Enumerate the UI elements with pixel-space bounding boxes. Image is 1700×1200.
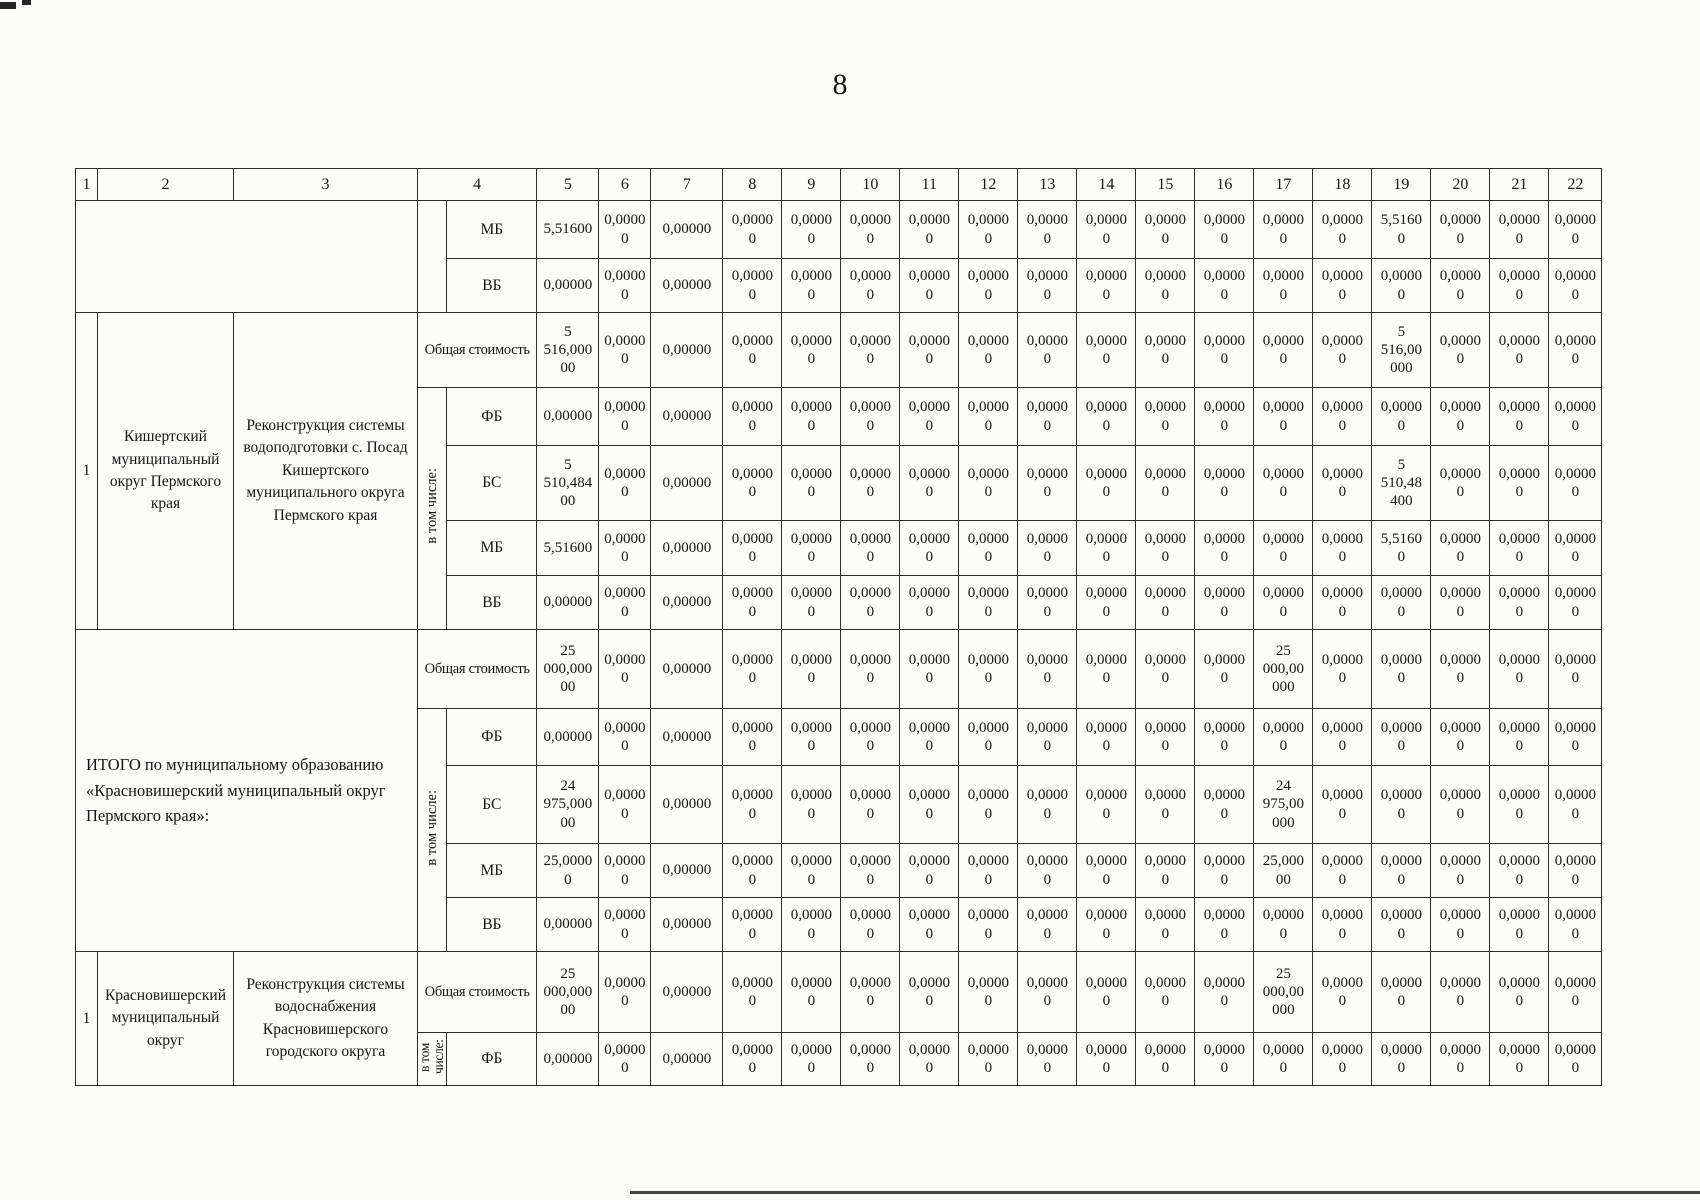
value-cell: 0,0000 0 (1018, 201, 1077, 259)
column-header: 9 (782, 169, 841, 201)
value-cell: 0,0000 0 (841, 844, 900, 898)
value-cell: 0,0000 0 (1195, 709, 1254, 766)
value-cell: 0,0000 0 (1254, 313, 1313, 388)
value-cell: 0,0000 0 (1018, 709, 1077, 766)
value-cell: 0,0000 0 (723, 952, 782, 1033)
including-label-cell: в том числе: (418, 1033, 447, 1086)
value-cell: 0,0000 0 (1549, 521, 1602, 576)
value-cell: 0,0000 0 (841, 1033, 900, 1086)
column-header: 5 (537, 169, 599, 201)
value-cell: 0,0000 0 (1018, 388, 1077, 446)
value-cell: 0,0000 0 (1431, 844, 1490, 898)
table-body: МБ5,516000,0000 00,000000,0000 00,0000 0… (76, 201, 1602, 1086)
source-label: БС (447, 766, 537, 844)
value-cell: 0,0000 0 (900, 630, 959, 709)
value-cell: 0,0000 0 (782, 201, 841, 259)
column-header: 18 (1313, 169, 1372, 201)
value-cell: 0,00000 (537, 259, 599, 313)
including-label-cell: в том числе: (418, 709, 447, 952)
value-cell: 0,00000 (651, 313, 723, 388)
column-header: 20 (1431, 169, 1490, 201)
value-cell: 0,0000 0 (1313, 259, 1372, 313)
value-cell: 0,0000 0 (1549, 201, 1602, 259)
value-cell: 0,0000 0 (1018, 521, 1077, 576)
column-header: 7 (651, 169, 723, 201)
value-cell: 0,0000 0 (1195, 766, 1254, 844)
column-header: 14 (1077, 169, 1136, 201)
value-cell: 0,0000 0 (1431, 313, 1490, 388)
value-cell: 5 516,00 000 (1372, 313, 1431, 388)
value-cell: 0,0000 0 (1018, 844, 1077, 898)
value-cell: 0,0000 0 (599, 446, 651, 521)
value-cell: 5 516,000 00 (537, 313, 599, 388)
column-header: 17 (1254, 169, 1313, 201)
source-label: ВБ (447, 259, 537, 313)
value-cell: 0,0000 0 (1077, 388, 1136, 446)
value-cell: 0,0000 0 (723, 259, 782, 313)
value-cell: 0,0000 0 (1136, 844, 1195, 898)
value-cell: 0,0000 0 (959, 952, 1018, 1033)
value-cell: 0,0000 0 (959, 521, 1018, 576)
value-cell: 0,0000 0 (599, 898, 651, 952)
table-row: 1Красновишерский муниципальный округРеко… (76, 952, 1602, 1033)
value-cell: 0,0000 0 (782, 259, 841, 313)
row-number-cell: 1 (76, 952, 98, 1086)
value-cell: 0,0000 0 (782, 388, 841, 446)
value-cell: 0,0000 0 (1431, 259, 1490, 313)
value-cell: 0,0000 0 (782, 313, 841, 388)
table-row: ИТОГО по муниципальному образованию «Кра… (76, 630, 1602, 709)
value-cell: 0,0000 0 (1018, 1033, 1077, 1086)
value-cell: 0,0000 0 (1372, 952, 1431, 1033)
value-cell: 0,0000 0 (1431, 766, 1490, 844)
value-cell: 0,0000 0 (1372, 898, 1431, 952)
value-cell: 0,0000 0 (1490, 709, 1549, 766)
value-cell: 0,0000 0 (1313, 766, 1372, 844)
value-cell: 0,0000 0 (1490, 576, 1549, 630)
value-cell: 5,51600 (537, 201, 599, 259)
value-cell: 0,0000 0 (723, 709, 782, 766)
value-cell: 0,0000 0 (1431, 446, 1490, 521)
value-cell: 24 975,000 00 (537, 766, 599, 844)
value-cell: 0,0000 0 (599, 766, 651, 844)
value-cell: 24 975,00 000 (1254, 766, 1313, 844)
value-cell: 0,0000 0 (841, 766, 900, 844)
scan-artifact-top-left-1 (0, 2, 16, 9)
value-cell: 25,000 00 (1254, 844, 1313, 898)
value-cell: 0,0000 0 (959, 388, 1018, 446)
source-label: ВБ (447, 898, 537, 952)
value-cell: 0,0000 0 (723, 1033, 782, 1086)
value-cell: 0,0000 0 (1490, 766, 1549, 844)
value-cell: 0,0000 0 (1195, 576, 1254, 630)
value-cell: 0,0000 0 (1372, 766, 1431, 844)
value-cell: 0,0000 0 (1490, 1033, 1549, 1086)
column-header: 13 (1018, 169, 1077, 201)
value-cell: 25 000,00 000 (1254, 952, 1313, 1033)
value-cell: 0,0000 0 (1077, 844, 1136, 898)
value-cell: 0,0000 0 (1195, 201, 1254, 259)
value-cell: 0,0000 0 (723, 446, 782, 521)
value-cell: 0,0000 0 (841, 630, 900, 709)
value-cell: 0,0000 0 (1077, 576, 1136, 630)
value-cell: 0,0000 0 (1077, 898, 1136, 952)
value-cell: 0,0000 0 (1490, 844, 1549, 898)
column-header: 8 (723, 169, 782, 201)
value-cell: 0,0000 0 (1136, 766, 1195, 844)
value-cell: 0,0000 0 (1431, 898, 1490, 952)
value-cell: 0,0000 0 (1372, 1033, 1431, 1086)
value-cell: 0,0000 0 (1136, 521, 1195, 576)
value-cell: 0,0000 0 (599, 259, 651, 313)
value-cell: 0,0000 0 (723, 521, 782, 576)
value-cell: 25 000,000 00 (537, 630, 599, 709)
value-cell: 0,0000 0 (782, 576, 841, 630)
value-cell: 0,0000 0 (1254, 259, 1313, 313)
project-cell: Реконструкция системы водоснабжения Крас… (234, 952, 418, 1086)
value-cell: 0,0000 0 (841, 259, 900, 313)
value-cell: 0,0000 0 (599, 952, 651, 1033)
value-cell: 0,0000 0 (959, 766, 1018, 844)
table-row: МБ5,516000,0000 00,000000,0000 00,0000 0… (76, 201, 1602, 259)
value-cell: 0,0000 0 (1431, 201, 1490, 259)
value-cell: 0,0000 0 (1195, 313, 1254, 388)
value-cell: 0,0000 0 (1136, 898, 1195, 952)
value-cell: 0,00000 (651, 766, 723, 844)
column-header: 4 (418, 169, 537, 201)
value-cell: 0,0000 0 (723, 844, 782, 898)
value-cell: 0,0000 0 (599, 521, 651, 576)
value-cell: 0,0000 0 (1254, 201, 1313, 259)
column-header: 19 (1372, 169, 1431, 201)
including-label-cell: в том числе: (418, 388, 447, 630)
value-cell: 0,0000 0 (782, 709, 841, 766)
value-cell: 0,0000 0 (959, 259, 1018, 313)
value-cell: 0,0000 0 (900, 259, 959, 313)
value-cell: 0,00000 (651, 521, 723, 576)
value-cell: 0,0000 0 (841, 709, 900, 766)
value-cell: 0,0000 0 (782, 952, 841, 1033)
column-header: 16 (1195, 169, 1254, 201)
value-cell: 0,0000 0 (723, 313, 782, 388)
value-cell: 0,0000 0 (1077, 313, 1136, 388)
page-number: 8 (760, 68, 920, 102)
value-cell: 0,0000 0 (1077, 1033, 1136, 1086)
value-cell: 0,0000 0 (723, 576, 782, 630)
value-cell: 0,0000 0 (900, 766, 959, 844)
value-cell: 0,0000 0 (1136, 259, 1195, 313)
total-cost-label: Общая стоимость (418, 313, 537, 388)
total-cost-label: Общая стоимость (418, 952, 537, 1033)
value-cell: 0,0000 0 (1490, 630, 1549, 709)
value-cell: 0,00000 (651, 446, 723, 521)
value-cell: 0,0000 0 (900, 446, 959, 521)
project-cell: Реконструкция системы водоподготовки с. … (234, 313, 418, 630)
document-page: { "page": { "number": "8" }, "table": { … (0, 0, 1700, 1200)
value-cell: 0,0000 0 (1254, 576, 1313, 630)
value-cell: 0,0000 0 (782, 446, 841, 521)
row-number-cell: 1 (76, 313, 98, 630)
value-cell: 0,0000 0 (900, 201, 959, 259)
value-cell: 0,0000 0 (1018, 446, 1077, 521)
value-cell: 0,0000 0 (1549, 952, 1602, 1033)
source-label: ВБ (447, 576, 537, 630)
value-cell: 0,0000 0 (900, 1033, 959, 1086)
value-cell: 0,0000 0 (1549, 844, 1602, 898)
value-cell: 0,0000 0 (1077, 446, 1136, 521)
value-cell: 0,0000 0 (599, 844, 651, 898)
value-cell: 0,0000 0 (841, 898, 900, 952)
value-cell: 0,0000 0 (841, 521, 900, 576)
value-cell: 0,0000 0 (1313, 844, 1372, 898)
value-cell: 5 510,484 00 (537, 446, 599, 521)
source-label: МБ (447, 521, 537, 576)
value-cell: 0,0000 0 (900, 952, 959, 1033)
value-cell: 0,0000 0 (782, 1033, 841, 1086)
value-cell: 0,00000 (651, 844, 723, 898)
value-cell: 5,5160 0 (1372, 201, 1431, 259)
value-cell: 0,0000 0 (1490, 259, 1549, 313)
value-cell: 0,0000 0 (1549, 1033, 1602, 1086)
value-cell: 0,0000 0 (900, 709, 959, 766)
value-cell: 0,0000 0 (1549, 630, 1602, 709)
table-row: 1Кишертский муниципальный округ Пермског… (76, 313, 1602, 388)
value-cell: 0,0000 0 (841, 201, 900, 259)
value-cell: 0,0000 0 (1136, 388, 1195, 446)
value-cell: 0,0000 0 (1313, 521, 1372, 576)
value-cell: 0,0000 0 (959, 898, 1018, 952)
value-cell: 0,0000 0 (1136, 952, 1195, 1033)
value-cell: 0,0000 0 (723, 630, 782, 709)
value-cell: 0,0000 0 (599, 709, 651, 766)
value-cell: 0,0000 0 (1077, 766, 1136, 844)
value-cell: 0,0000 0 (900, 898, 959, 952)
value-cell: 0,0000 0 (782, 844, 841, 898)
value-cell: 0,0000 0 (1195, 630, 1254, 709)
value-cell: 0,0000 0 (1018, 576, 1077, 630)
scan-artifact-bottom-line (630, 1191, 1700, 1194)
column-header: 15 (1136, 169, 1195, 201)
value-cell: 0,0000 0 (1313, 709, 1372, 766)
value-cell: 0,00000 (651, 898, 723, 952)
value-cell: 0,0000 0 (1549, 576, 1602, 630)
value-cell: 0,0000 0 (1372, 576, 1431, 630)
value-cell: 0,0000 0 (1195, 952, 1254, 1033)
table-head: 12345678910111213141516171819202122 (76, 169, 1602, 201)
carryover-including-cell (418, 201, 447, 313)
value-cell: 0,0000 0 (599, 576, 651, 630)
value-cell: 0,0000 0 (900, 388, 959, 446)
value-cell: 25 000,00 000 (1254, 630, 1313, 709)
value-cell: 0,0000 0 (723, 898, 782, 952)
value-cell: 0,0000 0 (1372, 844, 1431, 898)
value-cell: 0,0000 0 (1490, 313, 1549, 388)
value-cell: 0,0000 0 (1077, 630, 1136, 709)
value-cell: 0,00000 (537, 898, 599, 952)
value-cell: 0,0000 0 (959, 313, 1018, 388)
value-cell: 0,0000 0 (1372, 388, 1431, 446)
value-cell: 0,00000 (537, 709, 599, 766)
value-cell: 0,0000 0 (841, 576, 900, 630)
value-cell: 0,0000 0 (1136, 446, 1195, 521)
value-cell: 0,0000 0 (599, 388, 651, 446)
value-cell: 5,5160 0 (1372, 521, 1431, 576)
value-cell: 0,0000 0 (900, 521, 959, 576)
value-cell: 0,0000 0 (1431, 1033, 1490, 1086)
value-cell: 0,00000 (651, 259, 723, 313)
value-cell: 0,0000 0 (1018, 630, 1077, 709)
value-cell: 0,0000 0 (1136, 313, 1195, 388)
value-cell: 0,0000 0 (959, 844, 1018, 898)
value-cell: 0,0000 0 (900, 844, 959, 898)
value-cell: 0,0000 0 (841, 446, 900, 521)
including-vertical-label: в том числе: (425, 790, 440, 866)
source-label: ФБ (447, 709, 537, 766)
value-cell: 0,0000 0 (1549, 766, 1602, 844)
value-cell: 0,0000 0 (1313, 898, 1372, 952)
value-cell: 0,0000 0 (1431, 388, 1490, 446)
value-cell: 0,00000 (651, 576, 723, 630)
value-cell: 0,0000 0 (782, 766, 841, 844)
column-header: 6 (599, 169, 651, 201)
scan-artifact-top-left-2 (22, 0, 31, 5)
value-cell: 0,0000 0 (959, 201, 1018, 259)
column-header: 22 (1549, 169, 1602, 201)
value-cell: 0,0000 0 (1549, 388, 1602, 446)
value-cell: 0,0000 0 (782, 521, 841, 576)
value-cell: 0,0000 0 (1313, 446, 1372, 521)
source-label: БС (447, 446, 537, 521)
value-cell: 0,0000 0 (1431, 630, 1490, 709)
value-cell: 0,0000 0 (1136, 576, 1195, 630)
value-cell: 0,0000 0 (1490, 446, 1549, 521)
value-cell: 0,0000 0 (1313, 201, 1372, 259)
value-cell: 0,0000 0 (599, 630, 651, 709)
value-cell: 0,00000 (651, 630, 723, 709)
value-cell: 0,0000 0 (959, 709, 1018, 766)
value-cell: 0,0000 0 (599, 313, 651, 388)
value-cell: 0,0000 0 (599, 1033, 651, 1086)
value-cell: 0,0000 0 (1018, 766, 1077, 844)
value-cell: 0,0000 0 (782, 630, 841, 709)
value-cell: 0,0000 0 (1018, 952, 1077, 1033)
value-cell: 0,0000 0 (1077, 201, 1136, 259)
value-cell: 0,0000 0 (782, 898, 841, 952)
value-cell: 0,0000 0 (1372, 630, 1431, 709)
value-cell: 0,0000 0 (900, 313, 959, 388)
value-cell: 0,0000 0 (1136, 201, 1195, 259)
value-cell: 0,0000 0 (841, 313, 900, 388)
value-cell: 0,0000 0 (1431, 709, 1490, 766)
value-cell: 0,0000 0 (841, 388, 900, 446)
column-header: 12 (959, 169, 1018, 201)
value-cell: 5,51600 (537, 521, 599, 576)
value-cell: 0,0000 0 (1313, 576, 1372, 630)
summary-cell: ИТОГО по муниципальному образованию «Кра… (76, 630, 418, 952)
value-cell: 0,0000 0 (1431, 576, 1490, 630)
column-header: 3 (234, 169, 418, 201)
value-cell: 0,0000 0 (1490, 388, 1549, 446)
value-cell: 0,0000 0 (1195, 521, 1254, 576)
value-cell: 0,0000 0 (900, 576, 959, 630)
value-cell: 0,00000 (651, 388, 723, 446)
value-cell: 0,0000 0 (1490, 521, 1549, 576)
territory-cell: Красновишерский муниципальный округ (98, 952, 234, 1086)
value-cell: 0,0000 0 (841, 952, 900, 1033)
value-cell: 0,0000 0 (1077, 521, 1136, 576)
value-cell: 25,0000 0 (537, 844, 599, 898)
column-header: 2 (98, 169, 234, 201)
value-cell: 0,0000 0 (1549, 446, 1602, 521)
value-cell: 0,0000 0 (1490, 952, 1549, 1033)
value-cell: 5 510,48 400 (1372, 446, 1431, 521)
territory-cell: Кишертский муниципальный округ Пермского… (98, 313, 234, 630)
value-cell: 0,0000 0 (1549, 313, 1602, 388)
source-label: ФБ (447, 1033, 537, 1086)
value-cell: 0,0000 0 (1254, 709, 1313, 766)
column-header: 11 (900, 169, 959, 201)
value-cell: 0,0000 0 (1549, 709, 1602, 766)
value-cell: 0,0000 0 (1313, 313, 1372, 388)
value-cell: 0,00000 (537, 576, 599, 630)
value-cell: 0,00000 (537, 1033, 599, 1086)
value-cell: 0,0000 0 (1254, 898, 1313, 952)
value-cell: 0,0000 0 (1195, 898, 1254, 952)
value-cell: 0,0000 0 (959, 446, 1018, 521)
value-cell: 0,0000 0 (723, 388, 782, 446)
including-vertical-label: в том числе: (418, 1035, 446, 1079)
column-header: 1 (76, 169, 98, 201)
value-cell: 0,0000 0 (1549, 898, 1602, 952)
value-cell: 0,0000 0 (1313, 1033, 1372, 1086)
value-cell: 0,0000 0 (1254, 1033, 1313, 1086)
value-cell: 0,0000 0 (1490, 898, 1549, 952)
value-cell: 0,0000 0 (1077, 709, 1136, 766)
column-header: 10 (841, 169, 900, 201)
value-cell: 0,0000 0 (723, 766, 782, 844)
value-cell: 0,00000 (651, 1033, 723, 1086)
value-cell: 0,0000 0 (1136, 1033, 1195, 1086)
value-cell: 0,0000 0 (1195, 388, 1254, 446)
value-cell: 0,0000 0 (1018, 313, 1077, 388)
value-cell: 0,0000 0 (1136, 709, 1195, 766)
value-cell: 0,0000 0 (1254, 521, 1313, 576)
value-cell: 0,0000 0 (1018, 259, 1077, 313)
column-header: 21 (1490, 169, 1549, 201)
value-cell: 0,0000 0 (1313, 630, 1372, 709)
value-cell: 0,0000 0 (1195, 259, 1254, 313)
value-cell: 0,0000 0 (1136, 630, 1195, 709)
value-cell: 0,0000 0 (959, 576, 1018, 630)
value-cell: 0,0000 0 (1372, 259, 1431, 313)
including-vertical-label: в том числе: (425, 468, 440, 544)
source-label: ФБ (447, 388, 537, 446)
value-cell: 0,0000 0 (1313, 388, 1372, 446)
source-label: МБ (447, 844, 537, 898)
value-cell: 0,0000 0 (1431, 952, 1490, 1033)
source-label: МБ (447, 201, 537, 259)
value-cell: 0,00000 (651, 952, 723, 1033)
value-cell: 0,0000 0 (1431, 521, 1490, 576)
value-cell: 0,00000 (537, 388, 599, 446)
carryover-left-cell (76, 201, 418, 313)
total-cost-label: Общая стоимость (418, 630, 537, 709)
value-cell: 0,0000 0 (959, 630, 1018, 709)
value-cell: 0,0000 0 (1254, 388, 1313, 446)
value-cell: 0,00000 (651, 201, 723, 259)
schedule-table: 12345678910111213141516171819202122 МБ5,… (75, 168, 1602, 1086)
value-cell: 0,0000 0 (959, 1033, 1018, 1086)
